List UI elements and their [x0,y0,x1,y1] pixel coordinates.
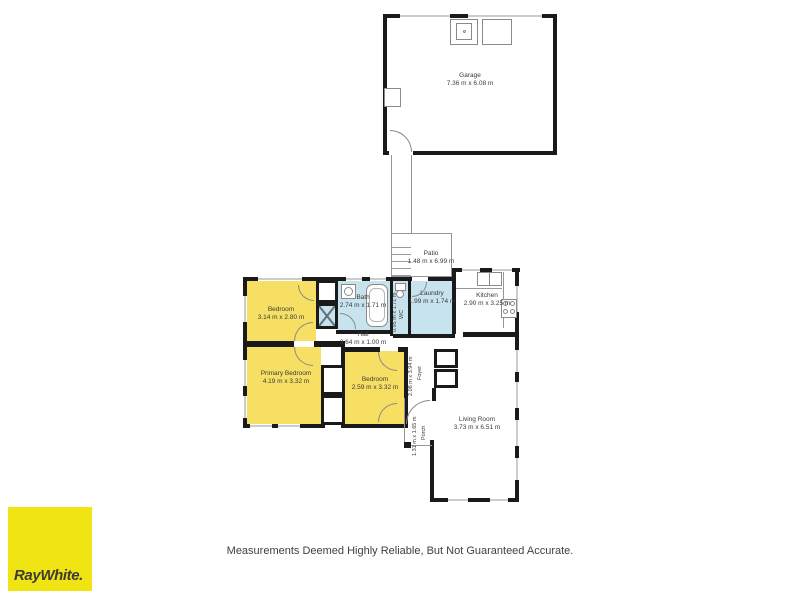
primary-bedroom-window-icon [278,424,300,428]
wall [341,424,408,428]
room-dims: 7.36 m x 6.08 m [430,80,510,88]
bedroom1-window-icon [243,296,247,322]
room-name: Hall [334,331,392,339]
room-dims: 3.73 m x 6.51 m [446,424,508,432]
room-name: Bedroom [249,306,313,314]
bath-label: Bath 2.74 m x 1.71 m [334,294,392,311]
raywhite-logo: RayWhite. [8,507,92,591]
bath-window-icon [370,277,386,281]
bedroom2-label: Bedroom 2.59 m x 3.32 m [346,376,404,393]
room-name: Garage [430,72,510,80]
wall [430,440,434,502]
garage-window-icon [400,14,450,18]
porch-name-label: Porch [422,418,430,440]
garage-window-icon [468,14,542,18]
room-name: Primary Bedroom [250,370,322,378]
living-room-label: Living Room 3.73 m x 6.51 m [446,416,508,433]
primary-bedroom-window-icon [243,360,247,386]
living-room-window-icon [515,350,519,372]
laundry-door-opening [412,277,428,281]
primary-bedroom-window-icon [250,424,272,428]
patio-label: Patio 1.48 m x 6.99 m [406,250,456,267]
room-dims: 4.19 m x 3.32 m [250,378,322,386]
living-room-window-icon [490,498,508,502]
wc-name-label: WC [400,305,407,319]
room-name: Laundry [408,290,456,298]
room-name: Kitchen [458,292,516,300]
foyer-name-label: Foyer [418,358,426,380]
floor-plan: Garage 7.36 m x 6.08 m Patio 1.48 m x 6.… [0,0,800,600]
room-dims: 1.99 m x 1.74 m [408,298,456,306]
room-name: Living Room [446,416,508,424]
foyer-dims-label: 2.08 m x 3.94 m [409,348,417,396]
living-room-window-icon [515,458,519,480]
porch-dims-label: 1.31 m x 1.65 m [413,410,421,456]
wall [393,334,455,338]
hall-label: Hall 3.64 m x 1.00 m [334,331,392,348]
room-dims: 2.59 m x 3.32 m [346,384,404,392]
raywhite-logo-text: RayWhite. [14,567,83,584]
garage-label: Garage 7.36 m x 6.08 m [430,72,510,89]
stove-burner-icon [503,309,508,314]
primary-wardrobe [321,365,345,395]
garage-cabinet-icon [384,88,401,107]
wall [243,341,294,347]
bedroom1-label: Bedroom 3.14 m x 2.80 m [249,306,313,323]
room-name: Bedroom [346,376,404,384]
kitchen-counter-line [456,288,502,289]
wall [463,332,519,337]
wall [432,388,436,401]
primary-bedroom-label: Primary Bedroom 4.19 m x 3.32 m [250,370,322,387]
living-room-window-icon [448,498,468,502]
laundry-label: Laundry 1.99 m x 1.74 m [408,290,456,307]
bath-window-icon [346,277,362,281]
foyer-closet [434,349,458,368]
room-name: Patio [406,250,456,258]
room-dims: 2.74 m x 1.71 m [334,302,392,310]
disclaimer-text: Measurements Deemed Highly Reliable, But… [0,545,800,557]
garage-bench-icon [482,19,512,45]
primary-bedroom-window-icon [243,396,247,418]
garage-tub-drain-icon [463,30,466,33]
room-dims: 1.48 m x 6.99 m [406,258,456,266]
room-name: Bath [334,294,392,302]
room-dims: 2.90 m x 3.25 m [458,300,516,308]
foyer-closet [434,369,458,388]
stove-burner-icon [510,309,515,314]
living-room-window-icon [515,382,519,408]
kitchen-label: Kitchen 2.90 m x 3.25 m [458,292,516,309]
patio-walkway [391,153,412,233]
porch-edge-line [404,398,405,446]
room-dims: 3.14 m x 2.80 m [249,314,313,322]
wall [404,442,411,448]
kitchen-sink-divider [489,273,490,285]
bedroom1-window-icon [258,277,302,281]
living-room-window-icon [515,420,519,446]
room-dims: 3.64 m x 1.00 m [334,339,392,347]
bedroom2-wardrobe [321,395,345,425]
